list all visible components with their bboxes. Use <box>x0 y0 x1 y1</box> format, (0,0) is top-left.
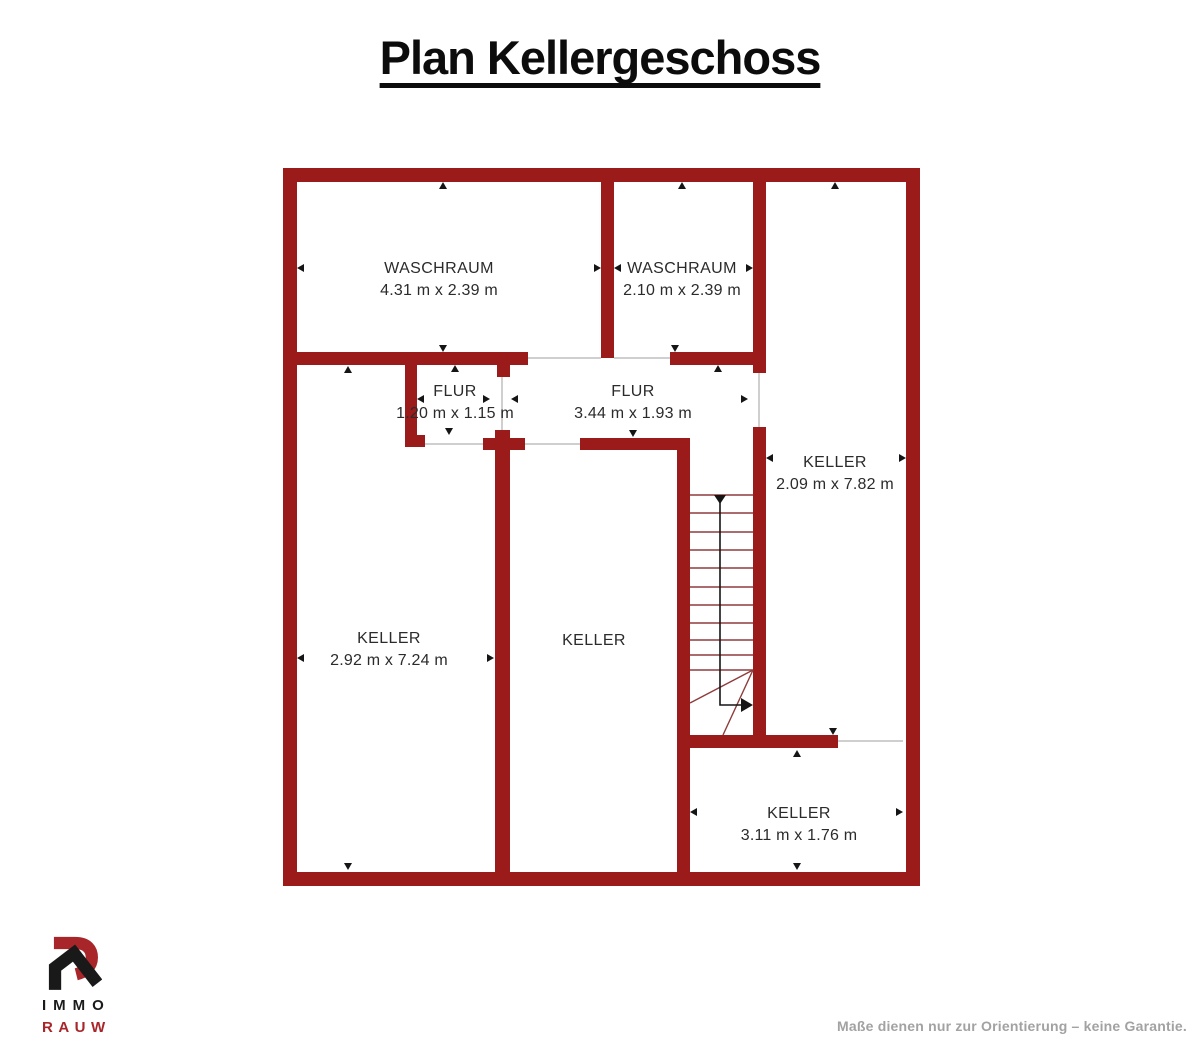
room-label-waschraum-2: WASCHRAUM 2.10 m x 2.39 m <box>623 258 741 302</box>
staircase <box>283 168 920 886</box>
dimension-arrow <box>451 365 459 372</box>
room-label-flur-large: FLUR 3.44 m x 1.93 m <box>574 381 692 425</box>
room-name: WASCHRAUM <box>380 258 498 280</box>
dimension-arrow <box>829 728 837 735</box>
dimension-arrow <box>793 750 801 757</box>
room-dimensions: 2.92 m x 7.24 m <box>330 650 448 672</box>
logo-text-rauw: RAUW <box>42 1019 111 1036</box>
dimension-arrow <box>671 345 679 352</box>
dimension-arrow <box>746 264 753 272</box>
room-label-keller-left: KELLER 2.92 m x 7.24 m <box>330 628 448 672</box>
room-dimensions: 3.44 m x 1.93 m <box>574 403 692 425</box>
floorplan-page: Plan Kellergeschoss <box>0 0 1200 1050</box>
room-name: KELLER <box>776 452 894 474</box>
disclaimer-text: Maße dienen nur zur Orientierung – keine… <box>837 1018 1187 1034</box>
dimension-arrow <box>899 454 906 462</box>
dimension-arrow <box>793 863 801 870</box>
dimension-arrow <box>297 654 304 662</box>
dimension-arrow <box>831 182 839 189</box>
dimension-arrow <box>614 264 621 272</box>
room-dimensions: 2.09 m x 7.82 m <box>776 474 894 496</box>
room-name: WASCHRAUM <box>623 258 741 280</box>
page-title: Plan Kellergeschoss <box>0 30 1200 85</box>
room-name: FLUR <box>396 381 514 403</box>
dimension-arrow <box>487 654 494 662</box>
room-label-keller-right: KELLER 2.09 m x 7.82 m <box>776 452 894 496</box>
dimension-arrow <box>896 808 903 816</box>
dimension-arrow <box>690 808 697 816</box>
dimension-arrow <box>714 365 722 372</box>
dimension-arrow <box>439 182 447 189</box>
room-name: FLUR <box>574 381 692 403</box>
room-dimensions: 2.10 m x 2.39 m <box>623 280 741 302</box>
dimension-arrow <box>629 430 637 437</box>
room-dimensions: 4.31 m x 2.39 m <box>380 280 498 302</box>
room-dimensions: 3.11 m x 1.76 m <box>741 825 858 847</box>
room-label-keller-middle: KELLER <box>562 630 626 652</box>
dimension-arrow <box>297 264 304 272</box>
room-name: KELLER <box>741 803 858 825</box>
dimension-arrow <box>594 264 601 272</box>
dimension-arrow <box>741 395 748 403</box>
room-label-waschraum-1: WASCHRAUM 4.31 m x 2.39 m <box>380 258 498 302</box>
logo-text-immo: IMMO <box>42 997 111 1014</box>
floorplan: WASCHRAUM 4.31 m x 2.39 m WASCHRAUM 2.10… <box>283 168 920 886</box>
room-label-keller-bottom: KELLER 3.11 m x 1.76 m <box>741 803 858 847</box>
dimension-arrow <box>344 863 352 870</box>
room-name: KELLER <box>562 630 626 652</box>
dimension-arrow <box>678 182 686 189</box>
room-dimensions: 1.20 m x 1.15 m <box>396 403 514 425</box>
room-name: KELLER <box>330 628 448 650</box>
dimension-arrow <box>439 345 447 352</box>
dimension-arrow <box>344 366 352 373</box>
dimension-arrow <box>766 454 773 462</box>
logo-mark-icon <box>46 933 102 991</box>
dimension-arrow <box>445 428 453 435</box>
room-label-flur-small: FLUR 1.20 m x 1.15 m <box>396 381 514 425</box>
